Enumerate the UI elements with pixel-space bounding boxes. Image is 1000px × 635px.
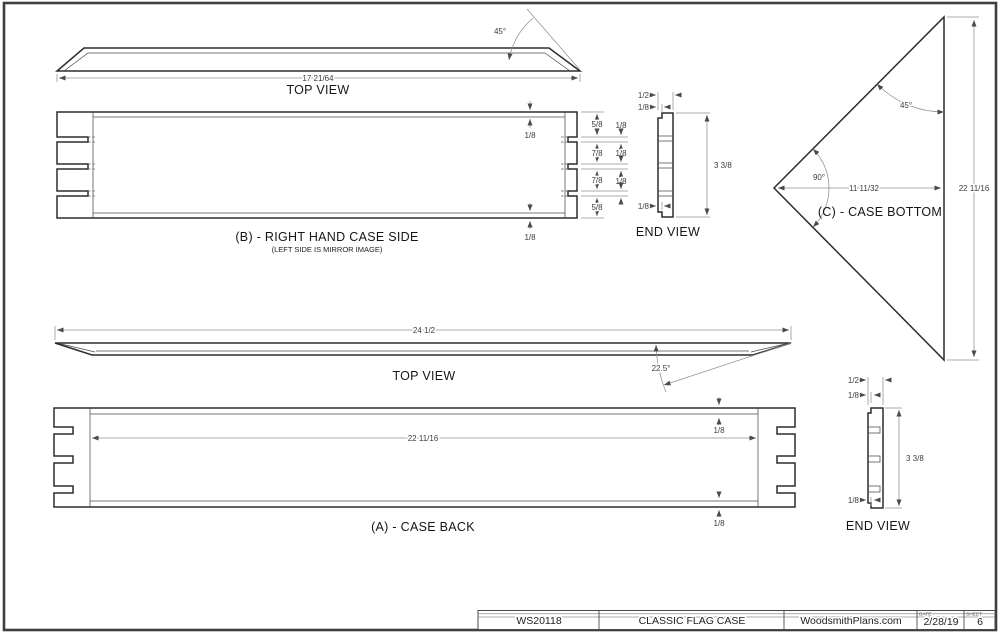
top-view-b-angle-text: 45°	[494, 27, 506, 36]
end-view-b-thickness-text: 1/2	[638, 91, 650, 100]
title-block-plan-number: WS20118	[516, 615, 561, 627]
end-view-b-drawing: 1/2 1/8 3 3/8 1/8 END VIEW	[636, 91, 732, 239]
case-back-a-bottom-rabbet-text: 1/8	[713, 519, 725, 528]
top-view-b-outline	[57, 48, 580, 71]
plan-sheet-page: 45° 17 21/64 TOP VIEW	[0, 0, 1000, 635]
end-view-a-drawing: 1/2 1/8 3 3/8 1/8 END VIEW	[846, 376, 924, 533]
title-block: WS20118 CLASSIC FLAG CASE WoodsmithPlans…	[478, 611, 995, 630]
case-bottom-c-label: (C) - CASE BOTTOM	[818, 205, 942, 219]
end-view-a-label: END VIEW	[846, 519, 910, 533]
case-bottom-c-drawing: 45° 90° 11 11/32 22 11/16 (C) - CASE BOT…	[774, 17, 990, 360]
case-side-b-rabbet-dims: 1/8 1/8	[524, 101, 536, 242]
case-side-b-slot3-text: 1/8	[615, 177, 627, 186]
case-bottom-c-depth-dim: 11 11/32	[778, 184, 941, 193]
end-view-a-bottom-rabbet-text: 1/8	[848, 496, 860, 505]
end-view-a-thickness-text: 1/2	[848, 376, 860, 385]
case-side-b-hidden-lines	[88, 137, 568, 196]
end-view-a-height-text: 3 3/8	[906, 454, 924, 463]
case-side-b-top-rabbet-text: 1/8	[524, 131, 536, 140]
case-side-b-seg3-text: 7/8	[591, 176, 603, 185]
case-back-a-inner-lines	[90, 408, 758, 507]
case-bottom-c-angle-top-dim: 45°	[877, 84, 944, 112]
top-view-a-drawing: 24 1/2 22.5° TOP VIEW	[55, 326, 791, 392]
top-view-a-angle-text: 22.5°	[652, 364, 671, 373]
end-view-b-height-text: 3 3/8	[714, 161, 732, 170]
case-side-b-inner-lines	[93, 112, 565, 218]
case-bottom-c-width-dim: 22 11/16	[947, 17, 990, 360]
case-back-a-width-dim: 22 11/16	[92, 434, 756, 443]
end-view-b-bottom-rabbet-text: 1/8	[638, 202, 650, 211]
title-block-website: WoodsmithPlans.com	[800, 615, 902, 627]
case-side-b-bottom-rabbet-text: 1/8	[524, 233, 536, 242]
case-bottom-c-width-text: 22 11/16	[959, 184, 990, 193]
case-side-b-slot1-text: 1/8	[615, 121, 627, 130]
case-side-b-label: (B) - RIGHT HAND CASE SIDE	[235, 230, 418, 244]
title-block-sheet-value: 6	[977, 616, 983, 628]
end-view-b-dims: 1/2 1/8 3 3/8 1/8	[638, 91, 732, 217]
case-back-a-label: (A) - CASE BACK	[371, 520, 475, 534]
top-view-a-outline	[55, 343, 791, 355]
title-block-plan-title: CLASSIC FLAG CASE	[639, 615, 746, 627]
end-view-a-dims: 1/2 1/8 3 3/8 1/8	[848, 376, 924, 508]
top-view-b-drawing: 45° 17 21/64 TOP VIEW	[57, 9, 580, 97]
case-side-b-seg1-text: 5/8	[591, 120, 603, 129]
top-view-b-width-text: 17 21/64	[302, 74, 334, 83]
case-side-b-seg2-text: 7/8	[591, 149, 603, 158]
sheet-border	[4, 3, 996, 630]
end-view-a-outline	[868, 408, 883, 508]
case-back-a-rabbet-dims: 1/8 1/8	[713, 397, 725, 528]
top-view-a-label: TOP VIEW	[392, 369, 455, 383]
end-view-a-tabs	[868, 427, 880, 492]
case-bottom-c-depth-text: 11 11/32	[849, 184, 880, 193]
case-side-b-outline	[57, 112, 577, 218]
end-view-a-top-rabbet-text: 1/8	[848, 391, 860, 400]
drawing-sheet: 45° 17 21/64 TOP VIEW	[0, 0, 1000, 635]
end-view-b-label: END VIEW	[636, 225, 700, 239]
end-view-b-grooves	[658, 136, 673, 196]
case-back-a-top-rabbet-text: 1/8	[713, 426, 725, 435]
case-back-a-outline	[54, 408, 795, 507]
title-block-date-value: 2/28/19	[923, 616, 958, 628]
case-back-a-drawing: 22 11/16 1/8 1/8 (A) - CASE BACK	[54, 397, 795, 534]
top-view-b-width-dim: 17 21/64	[57, 74, 580, 83]
case-side-b-seg4-text: 5/8	[591, 203, 603, 212]
case-side-b-sublabel: (LEFT SIDE IS MIRROR IMAGE)	[272, 245, 383, 254]
case-bottom-c-angle-corner-text: 90°	[813, 173, 825, 182]
case-bottom-c-angle-top-text: 45°	[900, 101, 912, 110]
top-view-a-width-dim: 24 1/2	[55, 326, 791, 340]
top-view-a-width-text: 24 1/2	[413, 326, 436, 335]
case-back-a-width-text: 22 11/16	[408, 434, 439, 443]
top-view-b-label: TOP VIEW	[286, 83, 349, 97]
top-view-b-inner-lines	[64, 53, 570, 71]
case-side-b-slot2-text: 1/8	[615, 149, 627, 158]
top-view-a-inner-lines	[61, 344, 785, 352]
end-view-b-top-rabbet-text: 1/8	[638, 103, 650, 112]
case-side-b-finger-dims: 5/8 7/8 7/8 5/8 1/8 1/8 1/8	[581, 112, 628, 218]
end-view-b-outline	[658, 113, 673, 217]
case-side-b-drawing: 1/8 1/8 5/8 7/8 7/8 5/8 1/8	[57, 101, 628, 254]
